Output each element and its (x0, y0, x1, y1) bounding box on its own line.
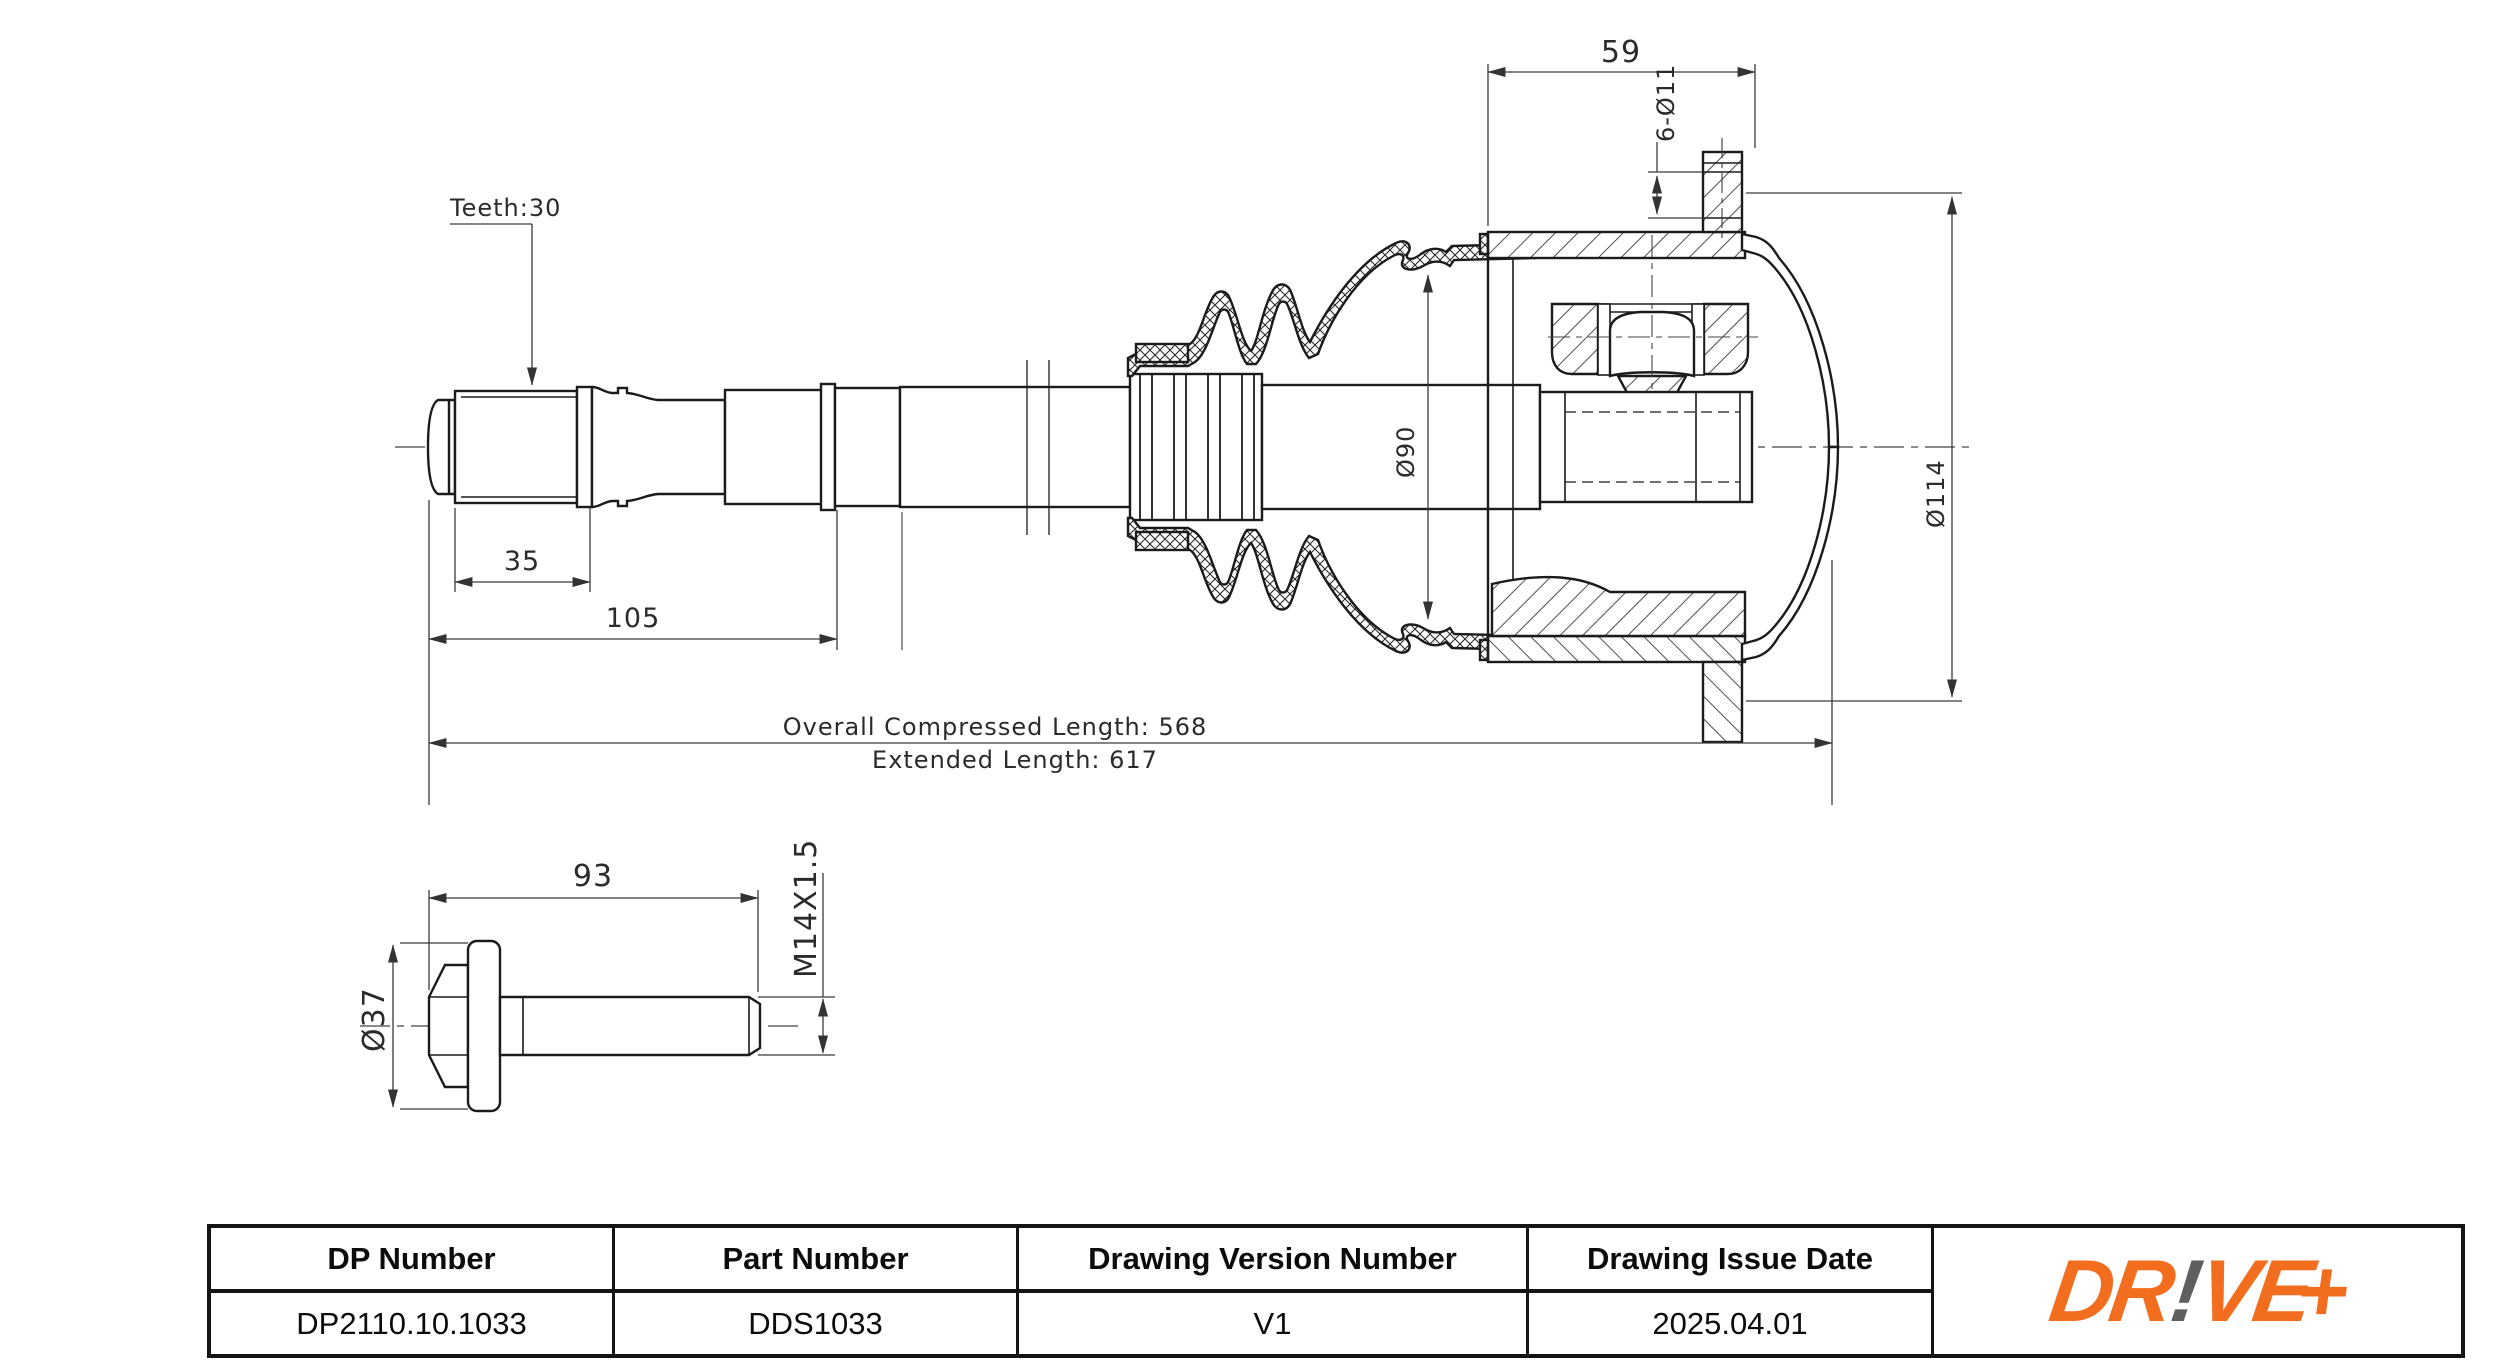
hub-block-section (1492, 577, 1745, 636)
joint-bell-cover (1742, 234, 1838, 447)
dim-head-dia: Ø37 (357, 987, 392, 1052)
logo-cell: DR!VE+ (1934, 1224, 2465, 1358)
header-part-number: Part Number (615, 1228, 1019, 1289)
bolt-shank (500, 997, 760, 1055)
dim-105: 105 (606, 603, 661, 634)
shaft-end-cap (428, 400, 455, 494)
drive-plus-logo: DR!VE+ (2045, 1247, 2351, 1335)
stub-shaft (1540, 392, 1752, 502)
technical-drawing-canvas: Teeth:30 59 6-Ø11 Ø90 Ø114 35 105 Overal… (0, 0, 2500, 1363)
header-issue-date: Drawing Issue Date (1529, 1228, 1934, 1289)
dim-93: 93 (573, 859, 613, 894)
dim-bolt-holes: 6-Ø11 (1652, 64, 1680, 142)
bolt-view (360, 941, 800, 1111)
dim-extended-length: Extended Length: 617 (872, 746, 1158, 774)
value-drawing-version: V1 (1019, 1293, 1529, 1354)
bolt-flange-washer (468, 941, 500, 1111)
logo-text-dr: DR (2044, 1241, 2177, 1340)
housing-wall-section (1488, 232, 1745, 258)
dim-thread: M14X1.5 (789, 839, 824, 978)
boot-clamp-small (1136, 344, 1188, 362)
value-part-number: DDS1033 (615, 1293, 1019, 1354)
dim-compressed-length: Overall Compressed Length: 568 (783, 713, 1208, 741)
drawing-sheet: Teeth:30 59 6-Ø11 Ø90 Ø114 35 105 Overal… (0, 0, 2500, 1363)
dim-59: 59 (1601, 35, 1641, 70)
dim-boot-dia: Ø90 (1392, 426, 1420, 478)
spline-section (455, 391, 577, 503)
value-dp-number: DP2110.10.1033 (211, 1293, 615, 1354)
shaft-assembly-view (395, 152, 1975, 742)
dim-35: 35 (504, 546, 540, 577)
header-dp-number: DP Number (211, 1228, 615, 1289)
header-drawing-version: Drawing Version Number (1019, 1228, 1529, 1289)
bolt-head (429, 965, 468, 1087)
value-issue-date: 2025.04.01 (1529, 1293, 1934, 1354)
teeth-callout: Teeth:30 (449, 194, 561, 222)
dim-flange-dia: Ø114 (1922, 459, 1950, 528)
